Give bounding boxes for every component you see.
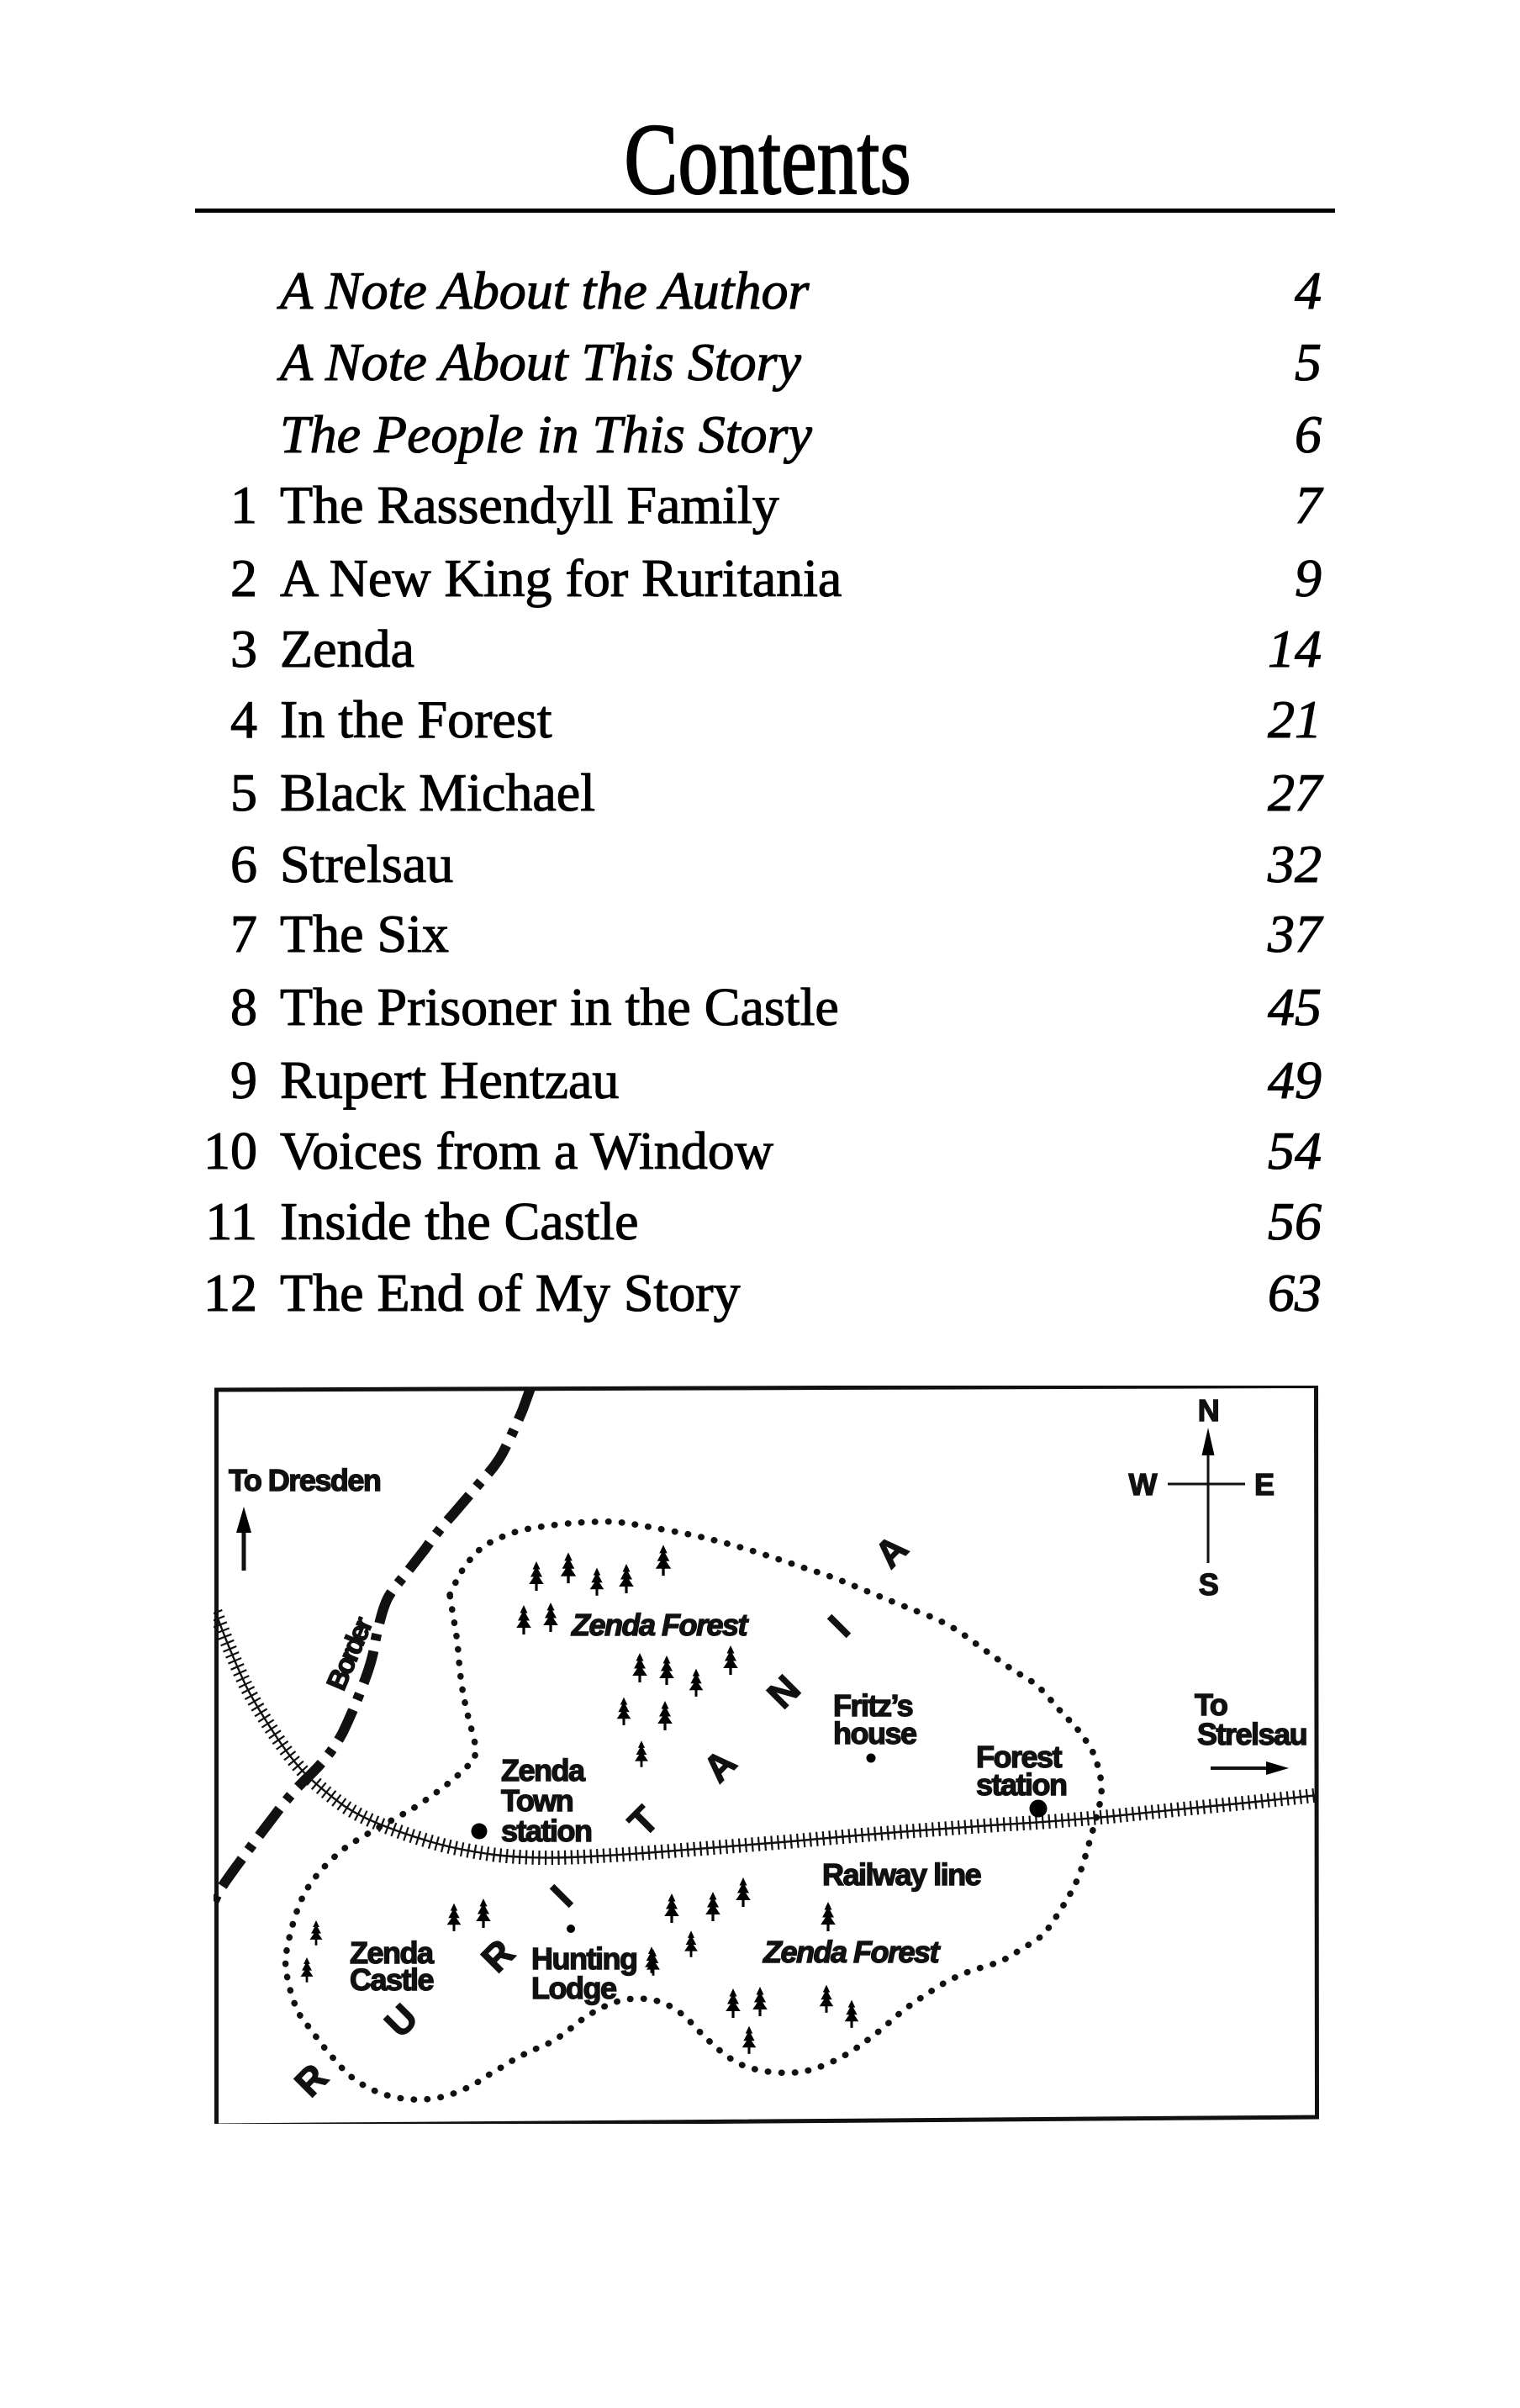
svg-text:house: house bbox=[833, 1716, 916, 1751]
svg-text:R: R bbox=[286, 2055, 335, 2104]
svg-text:W: W bbox=[1129, 1467, 1158, 1502]
svg-text:T: T bbox=[620, 1798, 667, 1845]
svg-text:station: station bbox=[501, 1814, 592, 1848]
svg-text:U: U bbox=[376, 1995, 425, 2045]
svg-text:Zenda Forest: Zenda Forest bbox=[571, 1608, 750, 1642]
svg-text:Railway line: Railway line bbox=[822, 1857, 981, 1892]
svg-text:Zenda: Zenda bbox=[501, 1753, 586, 1788]
svg-text:Zenda Forest: Zenda Forest bbox=[763, 1935, 942, 1969]
svg-text:Strelsau: Strelsau bbox=[1197, 1717, 1306, 1751]
svg-text:station: station bbox=[976, 1767, 1067, 1802]
svg-text:S: S bbox=[1199, 1567, 1218, 1602]
svg-text:Castle: Castle bbox=[350, 1962, 434, 1997]
svg-text:N: N bbox=[1198, 1393, 1219, 1428]
svg-text:I: I bbox=[821, 1608, 858, 1645]
svg-text:N: N bbox=[758, 1666, 808, 1716]
svg-text:E: E bbox=[1254, 1467, 1274, 1502]
svg-text:To Dresden: To Dresden bbox=[229, 1463, 380, 1497]
svg-text:Lodge: Lodge bbox=[531, 1971, 616, 2005]
svg-text:A: A bbox=[694, 1740, 744, 1790]
svg-text:R: R bbox=[472, 1930, 522, 1980]
svg-text:Town: Town bbox=[501, 1783, 573, 1818]
svg-text:I: I bbox=[543, 1877, 581, 1915]
svg-text:A: A bbox=[866, 1526, 916, 1576]
